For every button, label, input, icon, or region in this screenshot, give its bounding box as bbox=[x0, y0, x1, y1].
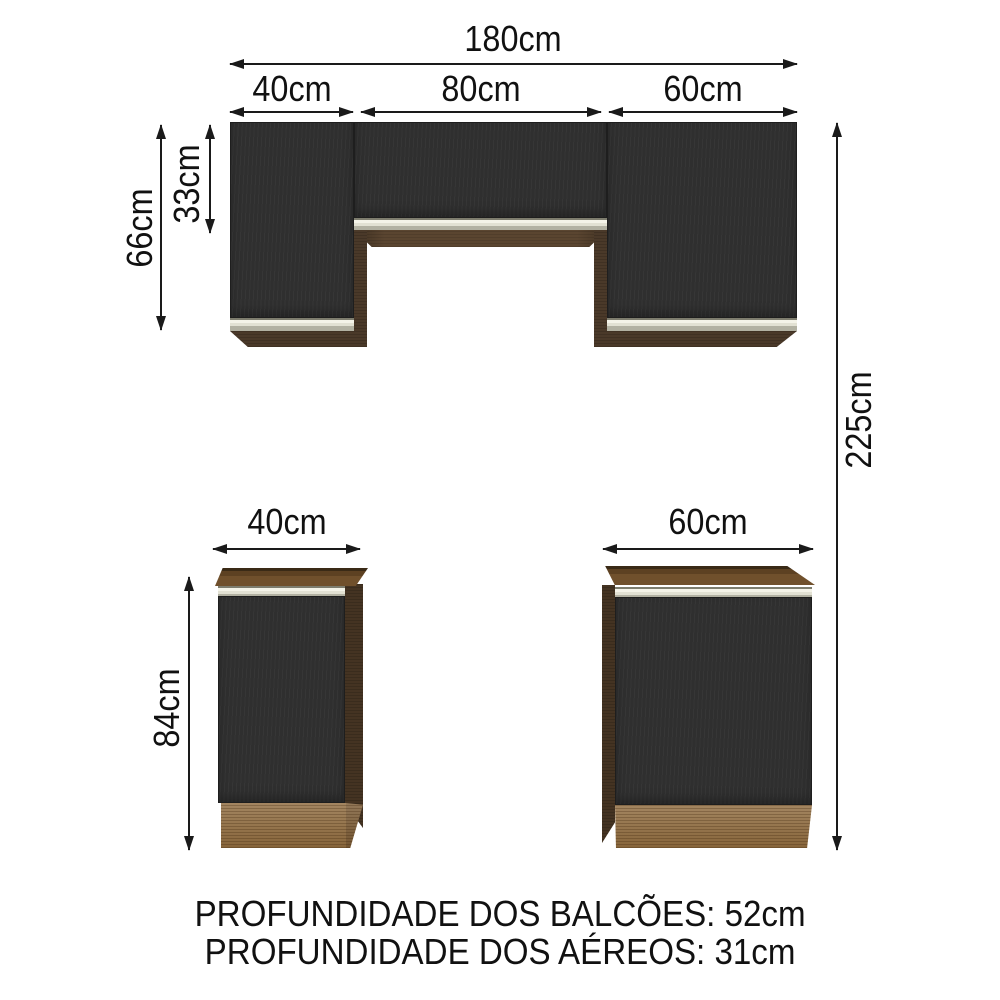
wall-right-cabinet-bottom bbox=[594, 331, 797, 347]
dim-arrow-wall-middle-width bbox=[361, 111, 601, 113]
dim-label-base-right-width: 60cm bbox=[608, 503, 808, 541]
dim-label-total-height: 225cm bbox=[841, 371, 877, 468]
wall-left-cabinet-inner-side-panel bbox=[354, 230, 367, 332]
dim-arrow-base-left-width bbox=[213, 548, 360, 550]
base-right-door bbox=[615, 597, 812, 805]
dim-text-wall-middle-width: 80cm bbox=[441, 70, 520, 108]
dim-arrow-wall-total-width bbox=[230, 63, 797, 65]
dim-text-base-right-width: 60cm bbox=[668, 503, 747, 541]
wall-middle-door bbox=[354, 122, 607, 218]
wall-right-door bbox=[607, 122, 797, 318]
dim-label-wall-total-width: 180cm bbox=[413, 20, 613, 58]
wall-right-cabinet-inner-side-panel bbox=[594, 230, 607, 332]
dim-arrow-wall-left-width bbox=[230, 111, 353, 113]
dim-label-base-left-width: 40cm bbox=[187, 503, 387, 541]
dim-arrow-wall-right-width bbox=[609, 111, 797, 113]
dim-label-base-height: 84cm bbox=[149, 668, 185, 747]
dim-label-wall-middle-width: 80cm bbox=[381, 70, 581, 108]
wall-right-door-handle bbox=[607, 318, 797, 331]
base-left-countertop bbox=[215, 568, 368, 586]
wall-left-cabinet-bottom bbox=[230, 331, 367, 347]
footer-depth-aereos-text: PROFUNDIDADE DOS AÉREOS: 31cm bbox=[205, 933, 796, 971]
dim-text-base-left-width: 40cm bbox=[247, 503, 326, 541]
dim-label-wall-middle-door-height: 33cm bbox=[169, 144, 205, 223]
base-left-plinth-side bbox=[346, 803, 363, 848]
base-left-door-handle bbox=[218, 586, 345, 596]
dim-text-wall-right-width: 60cm bbox=[663, 70, 742, 108]
kitchen-cabinet-dimensions-diagram: 180cm 40cm 80cm 60cm 66cm 33cm 225cm 40c… bbox=[0, 0, 1000, 1000]
base-left-plinth bbox=[221, 803, 346, 848]
base-left-door bbox=[218, 596, 345, 803]
base-right-door-handle bbox=[615, 587, 812, 597]
dim-arrow-wall-height bbox=[160, 125, 162, 330]
footer-depth-aereos: PROFUNDIDADE DOS AÉREOS: 31cm bbox=[0, 933, 1000, 971]
dim-arrow-base-height bbox=[188, 577, 190, 850]
wall-left-door bbox=[230, 122, 354, 318]
wall-middle-cabinet-underside bbox=[354, 230, 607, 247]
wall-left-door-handle bbox=[230, 318, 354, 331]
dim-text-wall-total-width: 180cm bbox=[464, 20, 561, 58]
dim-label-wall-height: 66cm bbox=[122, 188, 158, 267]
dim-arrow-total-height bbox=[836, 123, 838, 850]
dim-label-wall-right-width: 60cm bbox=[603, 70, 803, 108]
footer-depth-balcoes: PROFUNDIDADE DOS BALCÕES: 52cm bbox=[0, 895, 1000, 933]
base-right-countertop bbox=[602, 566, 815, 585]
dim-arrow-base-right-width bbox=[603, 548, 813, 550]
dim-arrow-wall-middle-door-height bbox=[209, 125, 211, 233]
base-left-side-panel bbox=[345, 584, 363, 828]
dim-label-wall-left-width: 40cm bbox=[192, 70, 392, 108]
base-right-plinth bbox=[615, 805, 812, 848]
dim-text-wall-left-width: 40cm bbox=[252, 70, 331, 108]
wall-middle-door-handle bbox=[354, 218, 607, 230]
footer-depth-balcoes-text: PROFUNDIDADE DOS BALCÕES: 52cm bbox=[194, 895, 805, 933]
base-right-side-panel bbox=[602, 585, 615, 843]
